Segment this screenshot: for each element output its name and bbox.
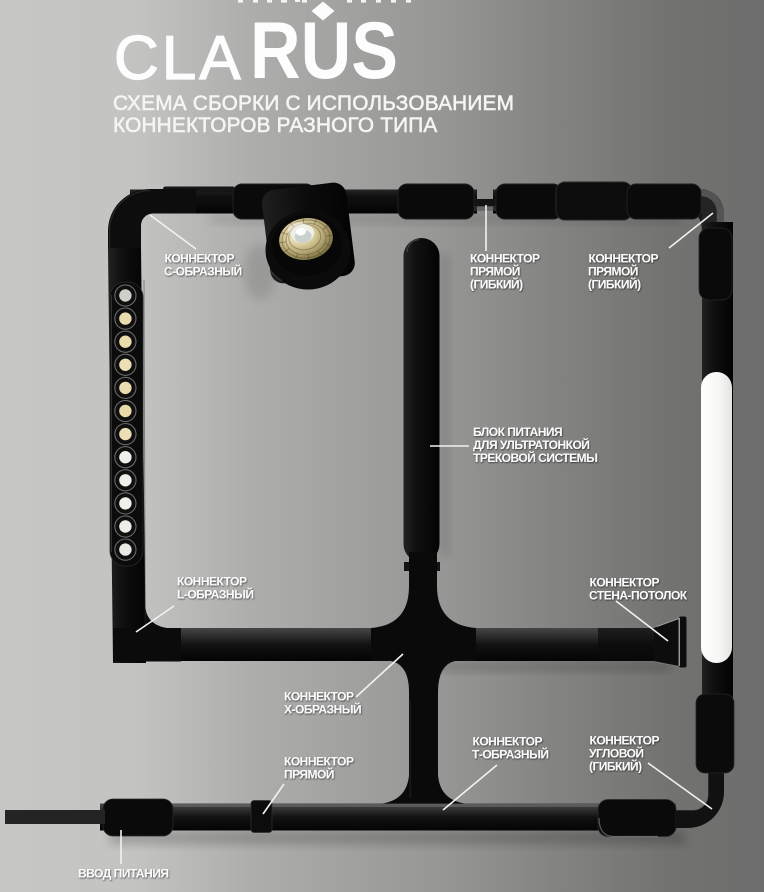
svg-text:СХЕМА СБОРКИ С ИСПОЛЬЗОВАНИЕМ: СХЕМА СБОРКИ С ИСПОЛЬЗОВАНИЕМ <box>113 92 514 115</box>
svg-text:RUS: RUS <box>250 6 398 96</box>
svg-text:ВВОД ПИТАНИЯ: ВВОД ПИТАНИЯ <box>78 867 169 881</box>
svg-text:КОННЕКТОРL-ОБРАЗНЫЙ: КОННЕКТОРL-ОБРАЗНЫЙ <box>177 575 253 602</box>
svg-text:CLA: CLA <box>114 24 244 93</box>
svg-text:КОННЕКТОРХ-ОБРАЗНЫЙ: КОННЕКТОРХ-ОБРАЗНЫЙ <box>284 690 361 717</box>
svg-text:КОННЕКТОРОВ РАЗНОГО ТИПА: КОННЕКТОРОВ РАЗНОГО ТИПА <box>113 114 437 137</box>
svg-text:КОННЕКТОРТ-ОБРАЗНЫЙ: КОННЕКТОРТ-ОБРАЗНЫЙ <box>472 735 548 762</box>
svg-text:КОННЕКТОРС-ОБРАЗНЫЙ: КОННЕКТОРС-ОБРАЗНЫЙ <box>164 252 242 279</box>
